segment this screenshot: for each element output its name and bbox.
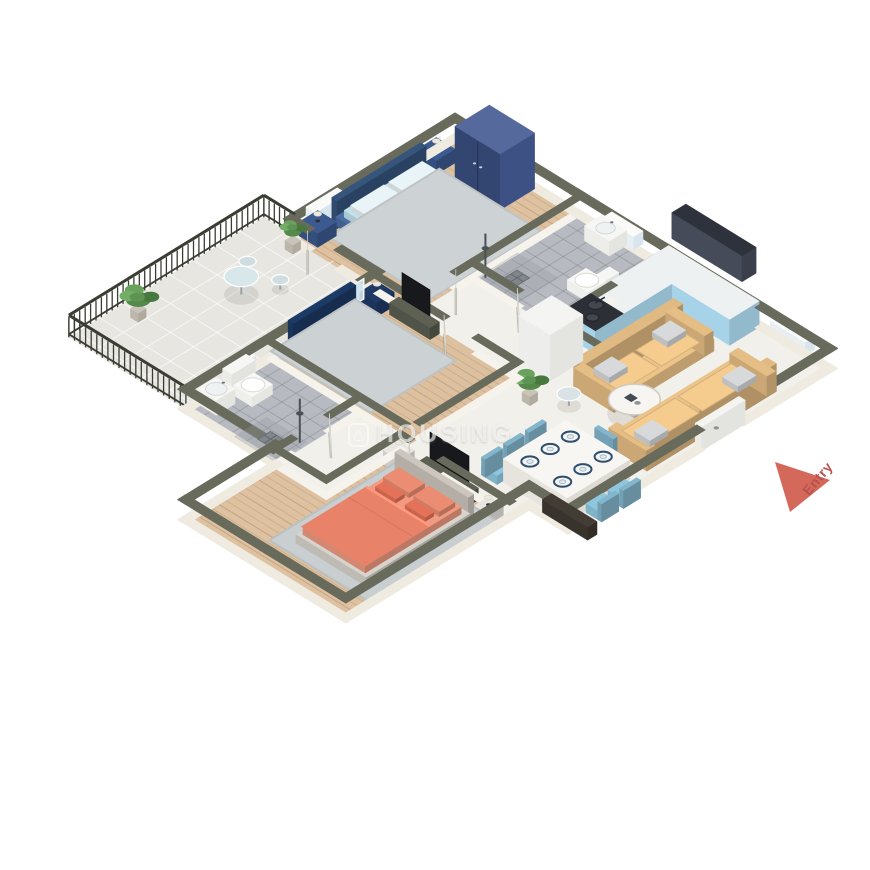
floorplan-stage: ⌂ HOUSING Entry xyxy=(0,0,870,870)
floorplan-3d-render xyxy=(0,0,870,870)
